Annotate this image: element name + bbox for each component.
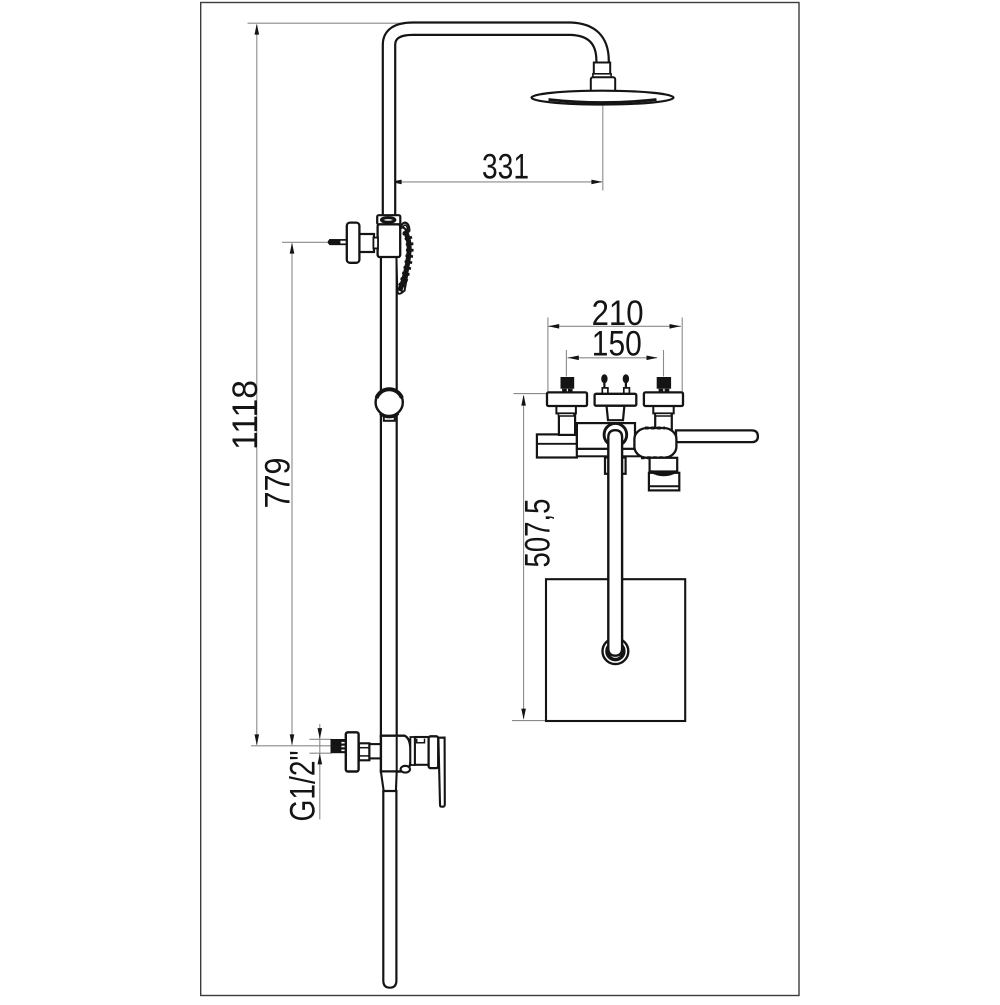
svg-text:G1/2": G1/2" <box>284 751 323 822</box>
svg-text:779: 779 <box>258 458 297 509</box>
svg-text:331: 331 <box>482 148 529 187</box>
svg-text:1118: 1118 <box>226 380 265 450</box>
svg-text:150: 150 <box>592 324 642 363</box>
svg-text:507,5: 507,5 <box>519 499 558 568</box>
